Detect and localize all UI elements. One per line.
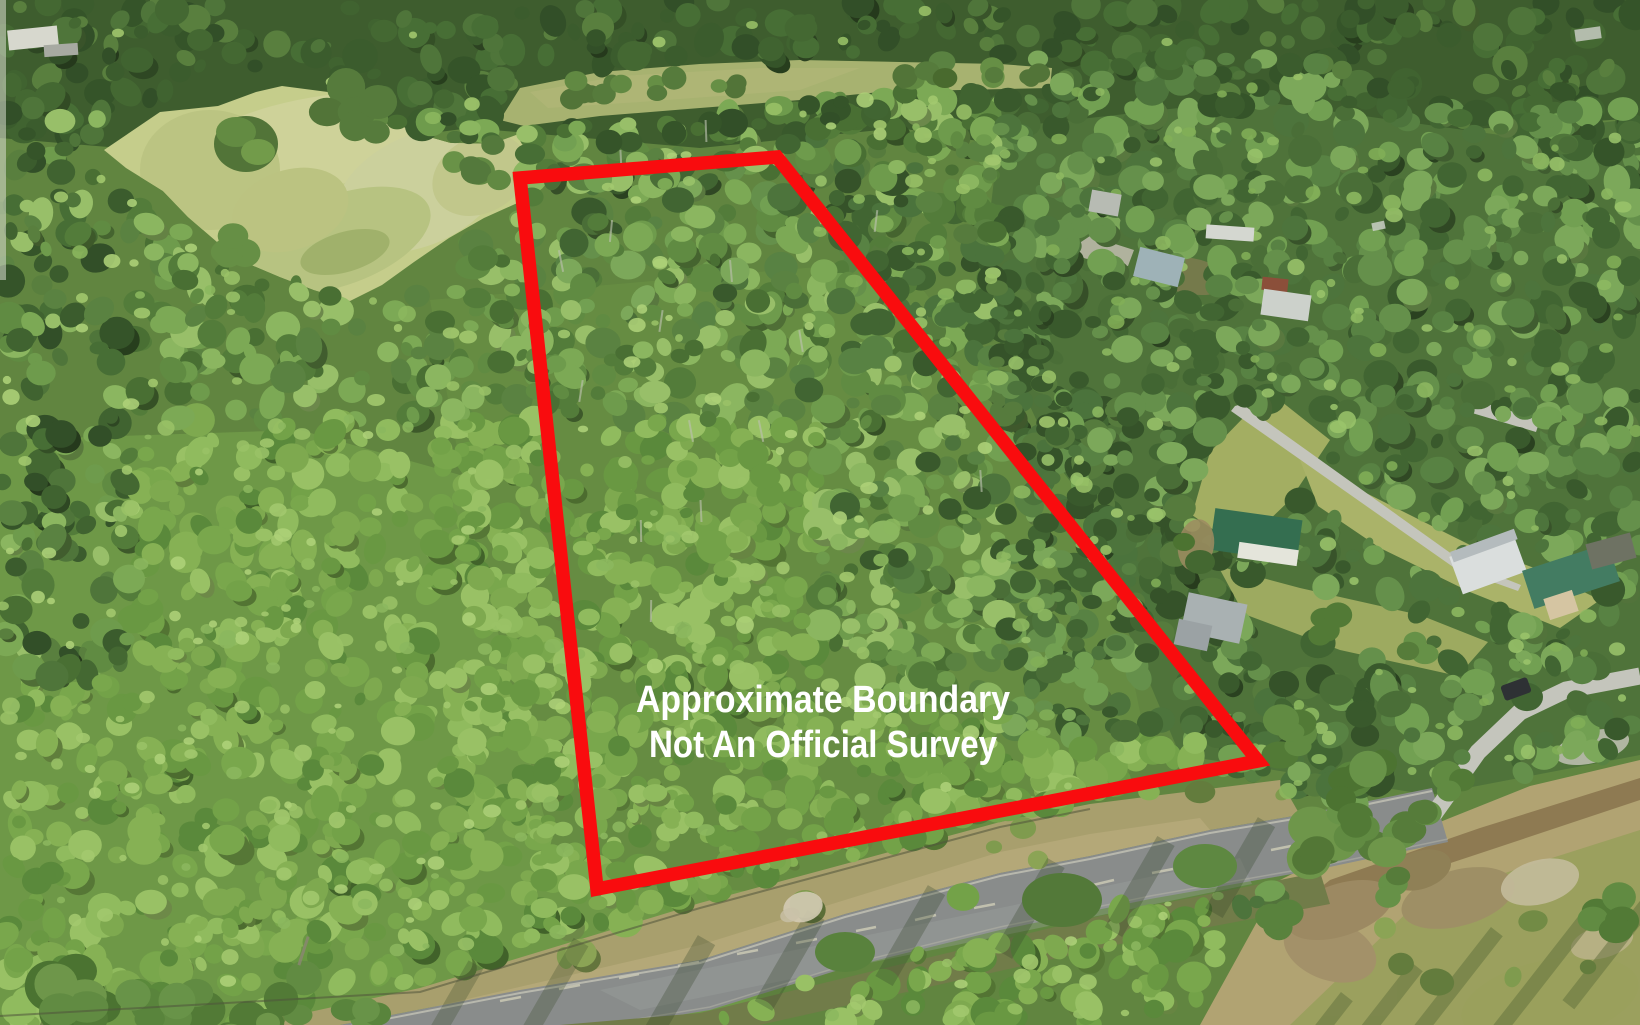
svg-text:Not An Official Survey: Not An Official Survey: [649, 724, 997, 766]
svg-text:Approximate Boundary: Approximate Boundary: [636, 679, 1010, 721]
